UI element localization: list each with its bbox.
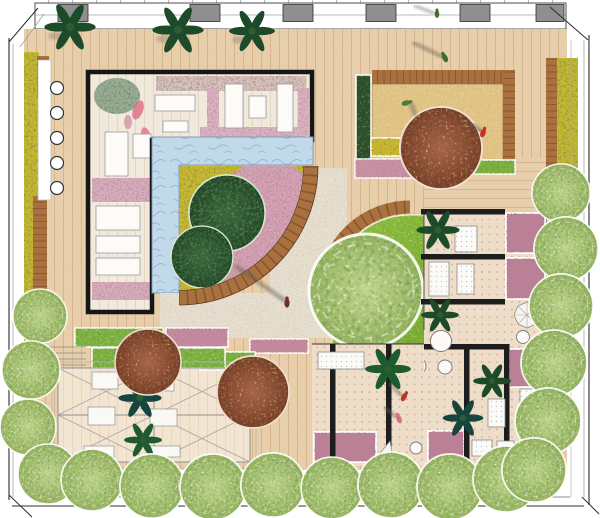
sand-court [355,70,515,189]
rust-tree [115,329,181,395]
cabana-rooms-south [312,344,424,466]
rust-tree [217,356,289,428]
lawn-feature-tree [309,234,423,348]
landscape-plan: Courtyard garden landscape plan, top-dow… [0,0,600,518]
rust-tree [400,107,482,189]
bench-strip [38,60,51,200]
plan-canvas: Courtyard garden landscape plan, top-dow… [0,0,600,518]
planter-tree [171,226,233,288]
